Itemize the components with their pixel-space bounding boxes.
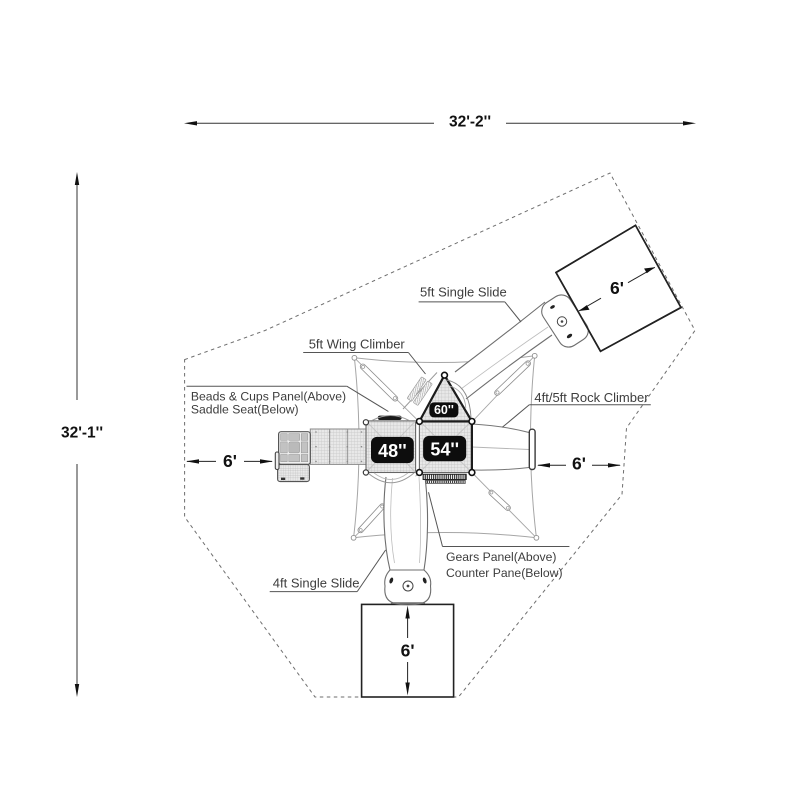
svg-text:4ft Single Slide: 4ft Single Slide bbox=[273, 576, 360, 591]
svg-text:6': 6' bbox=[401, 641, 415, 661]
svg-text:Beads & Cups Panel(Above): Beads & Cups Panel(Above) bbox=[191, 390, 346, 404]
svg-text:32'-1'': 32'-1'' bbox=[61, 425, 103, 442]
svg-text:5ft Wing Climber: 5ft Wing Climber bbox=[309, 337, 406, 352]
svg-text:Gears Panel(Above): Gears Panel(Above) bbox=[446, 550, 556, 564]
svg-text:48'': 48'' bbox=[378, 441, 407, 461]
svg-text:Counter Pane(Below): Counter Pane(Below) bbox=[446, 566, 563, 580]
svg-text:6': 6' bbox=[223, 451, 237, 471]
svg-text:6': 6' bbox=[610, 278, 624, 298]
svg-text:6': 6' bbox=[572, 454, 586, 474]
svg-text:32'-2'': 32'-2'' bbox=[449, 114, 491, 131]
svg-text:54'': 54'' bbox=[430, 440, 459, 460]
svg-text:5ft Single Slide: 5ft Single Slide bbox=[420, 285, 507, 300]
svg-text:60'': 60'' bbox=[434, 403, 454, 417]
svg-text:Saddle Seat(Below): Saddle Seat(Below) bbox=[191, 403, 299, 417]
svg-text:4ft/5ft Rock Climber: 4ft/5ft Rock Climber bbox=[534, 390, 649, 405]
